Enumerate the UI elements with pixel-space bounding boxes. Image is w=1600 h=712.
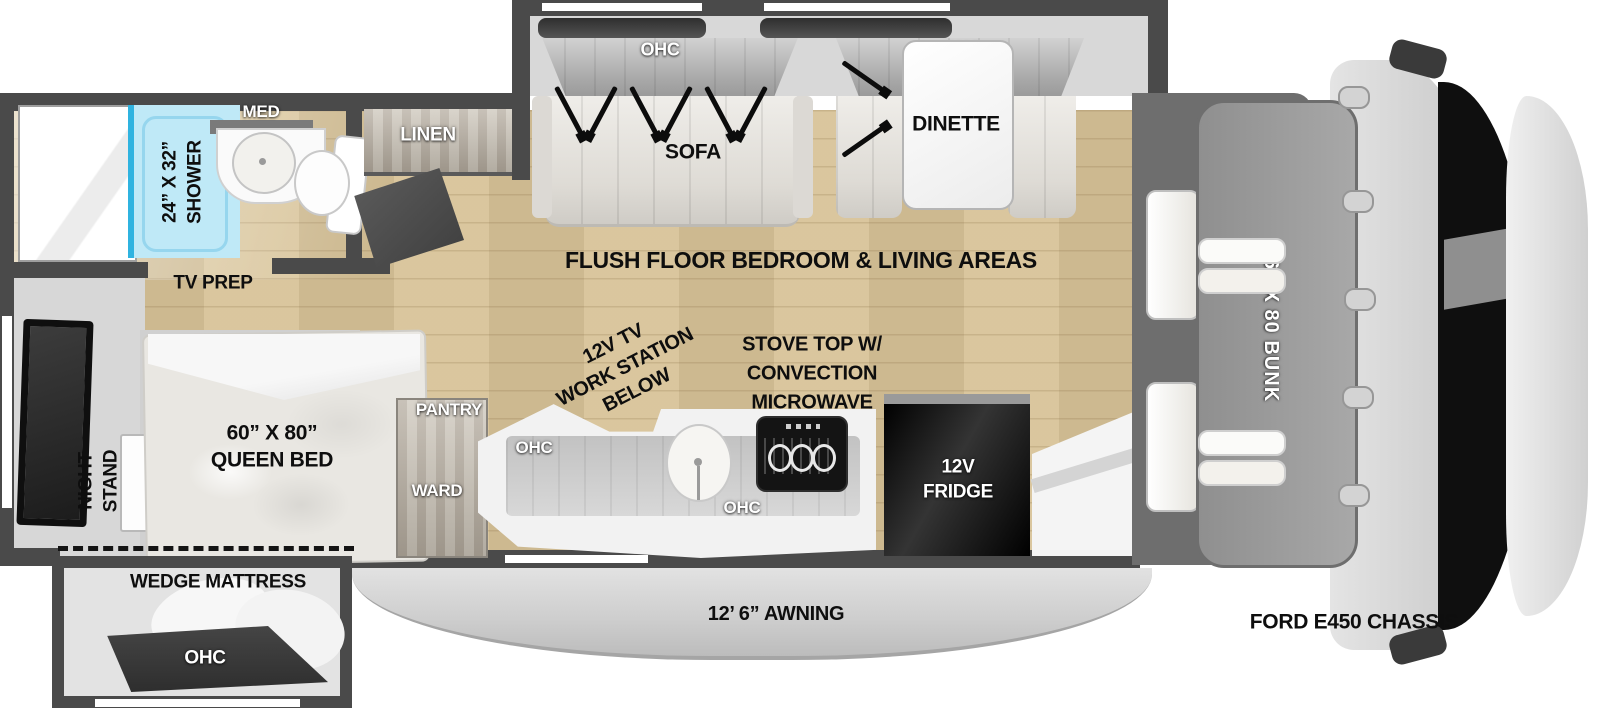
slide-left-wall [512, 0, 530, 96]
sofa-armrest-left [532, 96, 552, 218]
shower-label: 24” X 32” SHOWER [158, 140, 207, 224]
passenger-seat-back [1146, 382, 1200, 512]
stove-microwave-label: STOVE TOP W/ CONVECTION MICROWAVE [742, 331, 882, 418]
bunk-hinge-tab [1344, 288, 1376, 311]
bath-lower-wall-left [0, 262, 148, 278]
sofa-armrest-right [793, 96, 813, 218]
bunk-hinge-tab [1342, 386, 1374, 409]
slide-travel-dashed-line [58, 546, 354, 551]
dinette-bench-left [836, 96, 902, 218]
stove-burner-icon [812, 444, 836, 472]
flush-floor-label: FLUSH FLOOR BEDROOM & LIVING AREAS [565, 246, 1037, 276]
shower-pan [18, 105, 137, 262]
left-window [2, 316, 12, 508]
wedge-mattress-label: WEDGE MATTRESS [130, 571, 306, 596]
slide-window-left [542, 3, 702, 11]
rv-floorplan-canvas: 24” X 32” SHOWER MED LINEN TV PREP OHC S… [0, 0, 1600, 712]
bunk-hinge-tab [1338, 484, 1370, 507]
linen-wall-stub [512, 93, 530, 180]
kitchen-faucet-stem [697, 466, 700, 500]
passenger-seat-armrest [1198, 430, 1286, 456]
slide-window-right [764, 3, 950, 11]
kitchen-ohc-upper-label: OHC [516, 437, 553, 459]
driver-seat-armrest [1198, 268, 1286, 294]
slide-topper-left [538, 18, 706, 38]
bath-lower-wall-right [272, 258, 390, 274]
bedroom-ohc-label: OHC [184, 647, 225, 672]
kitchen-ohc-lower-label: OHC [724, 497, 761, 519]
rear-cap-strip [28, 85, 508, 93]
tv-prep-label: TV PREP [173, 272, 252, 297]
kitchen-faucet-icon [694, 458, 702, 466]
bottom-left-corner-wall [0, 548, 60, 566]
slide-topper-right [760, 18, 952, 38]
slide-right-wall [1148, 0, 1168, 96]
sofa-label: SOFA [665, 138, 721, 165]
med-cabinet-label: MED [243, 101, 280, 123]
sofa-ohc-label: OHC [640, 38, 679, 61]
stove-burner-icon [790, 444, 814, 472]
passenger-seat-armrest [1198, 460, 1286, 486]
stove-knob-row [786, 424, 820, 429]
night-stand-label: NIGHT STAND [74, 450, 123, 513]
queen-bed-label: 60” X 80” QUEEN BED [211, 420, 333, 475]
toilet-bowl-icon [294, 150, 350, 216]
stove-burner-icon [768, 444, 792, 472]
wedge-slide-window [95, 699, 300, 707]
pantry-ward-cabinet [396, 398, 488, 558]
fridge-label: 12V FRIDGE [923, 455, 993, 504]
hood [1506, 96, 1588, 616]
bunk-hinge-tab [1342, 190, 1374, 213]
dinette-label: DINETTE [912, 110, 1000, 137]
bunk-hinge-tab [1338, 86, 1370, 109]
pantry-label: PANTRY [416, 399, 482, 421]
awning-label: 12’ 6” AWNING [708, 601, 845, 627]
linen-label: LINEN [400, 124, 456, 149]
dinette-bench-right [1008, 96, 1076, 218]
driver-seat-armrest [1198, 238, 1286, 264]
ward-label: WARD [412, 480, 463, 502]
sink-faucet-icon [259, 158, 266, 165]
entry-door-strip [505, 555, 648, 563]
chassis-label: FORD E450 CHASSIS [1250, 608, 1458, 635]
driver-seat-back [1146, 190, 1200, 320]
